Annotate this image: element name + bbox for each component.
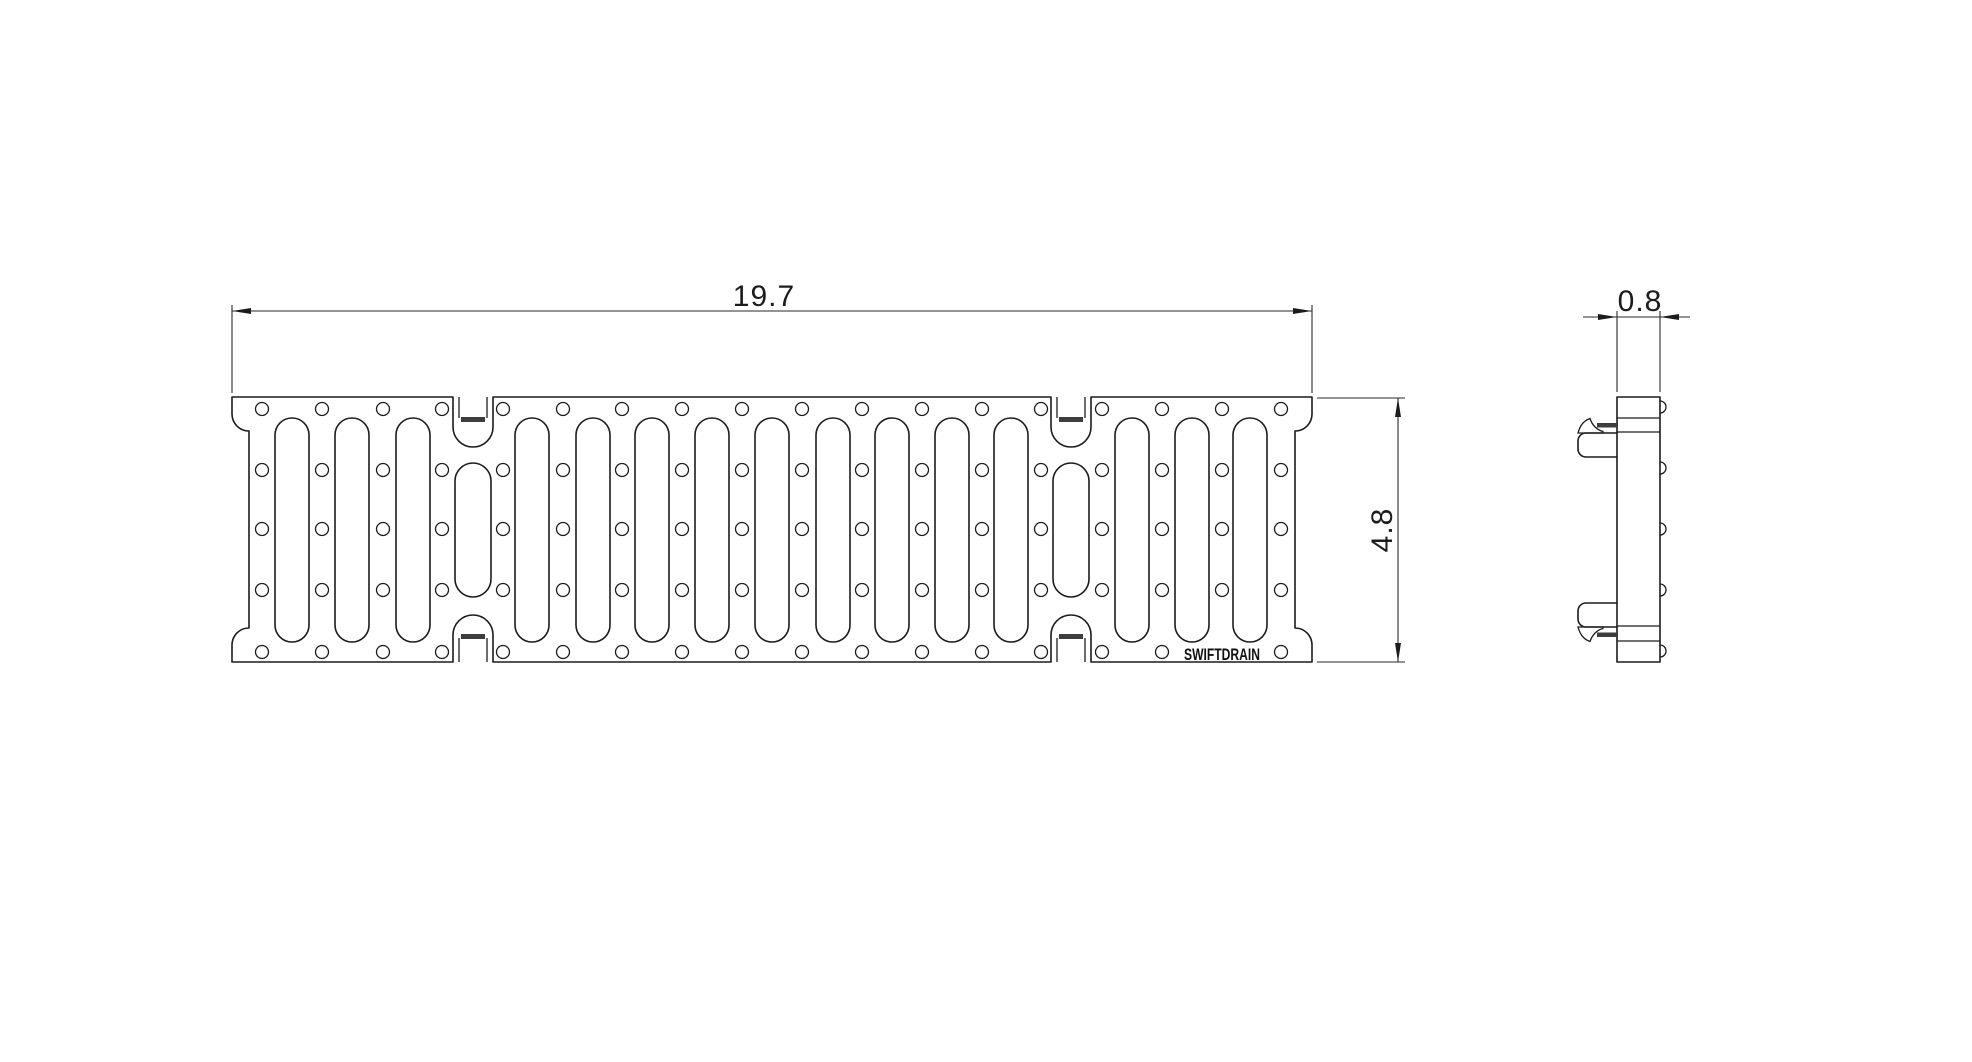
- drain-hole: [916, 403, 929, 416]
- drain-hole: [976, 584, 989, 597]
- drain-hole: [976, 403, 989, 416]
- drain-hole: [1096, 584, 1109, 597]
- drain-hole: [916, 523, 929, 536]
- drain-slot: [755, 418, 789, 642]
- drain-hole: [736, 646, 749, 659]
- drain-slot: [695, 418, 729, 642]
- locking-bar-bottom: [1059, 634, 1083, 639]
- side-hole-bump: [1660, 401, 1666, 413]
- locking-bar-top: [461, 417, 485, 422]
- side-locking-bar-bottom: [1597, 633, 1618, 638]
- arrowhead-right: [1293, 308, 1312, 314]
- drain-hole: [497, 464, 510, 477]
- drain-hole: [1035, 646, 1048, 659]
- side-hole-bump: [1660, 462, 1666, 474]
- arrowhead-down: [1395, 643, 1401, 662]
- drain-slot: [396, 418, 430, 642]
- drain-hole: [736, 464, 749, 477]
- drain-hole: [856, 523, 869, 536]
- drain-hole: [557, 584, 570, 597]
- side-profile-view: [1578, 397, 1666, 662]
- drain-hole: [916, 584, 929, 597]
- drain-hole: [557, 523, 570, 536]
- grate-outline: [232, 397, 1312, 662]
- drain-hole: [1035, 403, 1048, 416]
- drain-hole: [256, 464, 269, 477]
- arrowhead-inward-right: [1660, 314, 1679, 320]
- arrowhead-inward-left: [1598, 314, 1617, 320]
- drain-hole: [1156, 523, 1169, 536]
- drain-hole: [497, 403, 510, 416]
- drain-hole: [856, 464, 869, 477]
- side-hole-bump: [1660, 523, 1666, 535]
- drain-hole: [976, 523, 989, 536]
- drain-hole: [856, 403, 869, 416]
- drain-hole: [436, 584, 449, 597]
- plan-view: [232, 397, 1312, 662]
- drain-hole: [796, 523, 809, 536]
- locking-bar-top: [1059, 417, 1083, 422]
- drain-hole: [856, 584, 869, 597]
- drain-slot-short: [1053, 463, 1089, 597]
- drain-slot: [1115, 418, 1149, 642]
- dimension-height-label: 4.8: [1366, 508, 1399, 553]
- drain-hole: [676, 584, 689, 597]
- drain-hole: [736, 584, 749, 597]
- drain-hole: [1156, 584, 1169, 597]
- drain-hole: [377, 523, 390, 536]
- drain-hole: [557, 646, 570, 659]
- drain-slot: [816, 418, 850, 642]
- drain-hole: [1096, 403, 1109, 416]
- drain-hole: [497, 523, 510, 536]
- drain-hole: [316, 523, 329, 536]
- drain-hole: [1275, 584, 1288, 597]
- drain-hole: [1216, 523, 1229, 536]
- drain-slot: [875, 418, 909, 642]
- drain-hole: [916, 464, 929, 477]
- drain-slot: [994, 418, 1028, 642]
- drain-hole: [1035, 464, 1048, 477]
- drain-hole: [557, 403, 570, 416]
- drain-hole: [557, 464, 570, 477]
- drain-hole: [976, 464, 989, 477]
- arrowhead-up: [1395, 398, 1401, 417]
- drain-hole: [676, 464, 689, 477]
- drain-hole: [256, 403, 269, 416]
- drain-hole: [316, 646, 329, 659]
- drain-hole: [256, 523, 269, 536]
- drain-hole: [676, 523, 689, 536]
- side-clip-bottom: [1578, 603, 1617, 627]
- drain-hole: [856, 646, 869, 659]
- drain-hole: [1216, 464, 1229, 477]
- drain-hole: [736, 403, 749, 416]
- drain-hole: [1096, 464, 1109, 477]
- drain-hole: [316, 403, 329, 416]
- drain-hole: [377, 464, 390, 477]
- drain-slot-short: [455, 463, 491, 597]
- drain-hole: [676, 646, 689, 659]
- drain-hole: [616, 646, 629, 659]
- side-profile-body: [1617, 397, 1660, 662]
- side-hole-bump: [1660, 645, 1666, 657]
- side-hole-bump: [1660, 584, 1666, 596]
- drain-hole: [316, 464, 329, 477]
- drain-slot: [635, 418, 669, 642]
- dimension-width-label: 19.7: [733, 280, 795, 313]
- drain-hole: [616, 584, 629, 597]
- drain-hole: [616, 403, 629, 416]
- arrowhead-left: [232, 308, 251, 314]
- drain-hole: [377, 646, 390, 659]
- drain-hole: [256, 584, 269, 597]
- drain-hole: [1156, 464, 1169, 477]
- drain-hole: [436, 646, 449, 659]
- drain-hole: [1275, 464, 1288, 477]
- drain-slot: [335, 418, 369, 642]
- drain-hole: [796, 584, 809, 597]
- drain-hole: [916, 646, 929, 659]
- drain-hole: [676, 403, 689, 416]
- drain-slot: [1175, 418, 1209, 642]
- drain-hole: [796, 464, 809, 477]
- brand-label: SWIFTDRAIN: [1184, 645, 1260, 664]
- drain-hole: [436, 464, 449, 477]
- drain-hole: [1096, 646, 1109, 659]
- drain-hole: [497, 646, 510, 659]
- drain-hole: [256, 646, 269, 659]
- drain-hole: [1275, 523, 1288, 536]
- drain-slot: [576, 418, 610, 642]
- drain-hole: [616, 464, 629, 477]
- drain-hole: [796, 646, 809, 659]
- dimension-thickness-label: 0.8: [1618, 285, 1663, 318]
- drain-hole: [1275, 403, 1288, 416]
- drain-hole: [316, 584, 329, 597]
- drain-slot: [935, 418, 969, 642]
- drain-slot: [515, 418, 549, 642]
- drain-hole: [616, 523, 629, 536]
- drain-slot: [275, 418, 309, 642]
- side-clip-top: [1578, 433, 1617, 457]
- drain-hole: [1216, 584, 1229, 597]
- drain-hole: [497, 584, 510, 597]
- drain-hole: [1275, 646, 1288, 659]
- drain-hole: [1096, 523, 1109, 536]
- drain-slot: [1233, 418, 1267, 642]
- dimension-annotations: [232, 305, 1690, 662]
- drain-hole: [1216, 403, 1229, 416]
- drain-hole: [796, 403, 809, 416]
- drain-hole: [436, 523, 449, 536]
- drain-hole: [976, 646, 989, 659]
- technical-drawing-canvas: 19.7 4.8 0.8 SWIFTDRAIN: [0, 0, 1972, 1062]
- drain-hole: [377, 403, 390, 416]
- drain-hole: [1156, 403, 1169, 416]
- drain-hole: [1156, 646, 1169, 659]
- side-locking-bar-top: [1597, 423, 1618, 428]
- drain-hole: [1035, 584, 1048, 597]
- drain-hole: [736, 523, 749, 536]
- drain-hole: [1035, 523, 1048, 536]
- locking-bar-bottom: [461, 634, 485, 639]
- drawing-sheet: { "meta": { "background_color": "#ffffff…: [0, 0, 1972, 1062]
- drain-hole: [436, 403, 449, 416]
- drain-hole: [377, 584, 390, 597]
